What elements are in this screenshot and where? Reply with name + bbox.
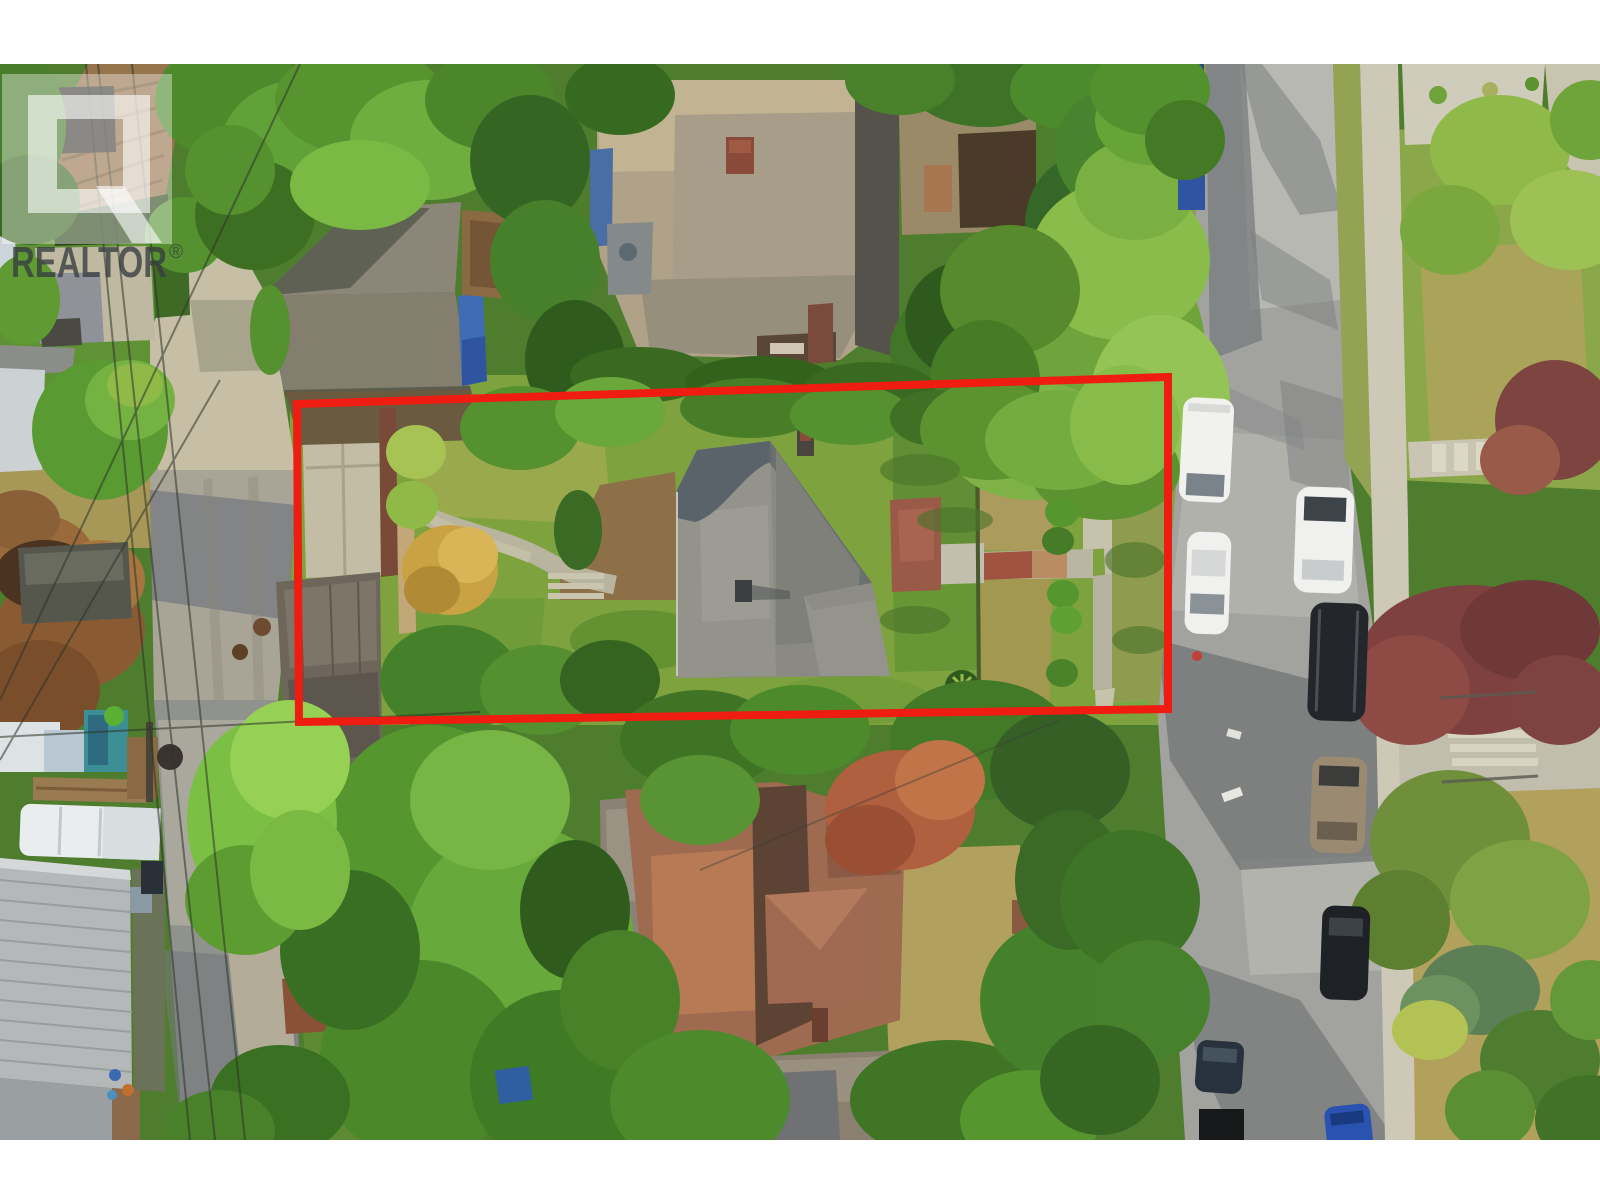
svg-text:®: ® <box>169 242 183 263</box>
svg-text:REALTOR: REALTOR <box>11 238 167 287</box>
